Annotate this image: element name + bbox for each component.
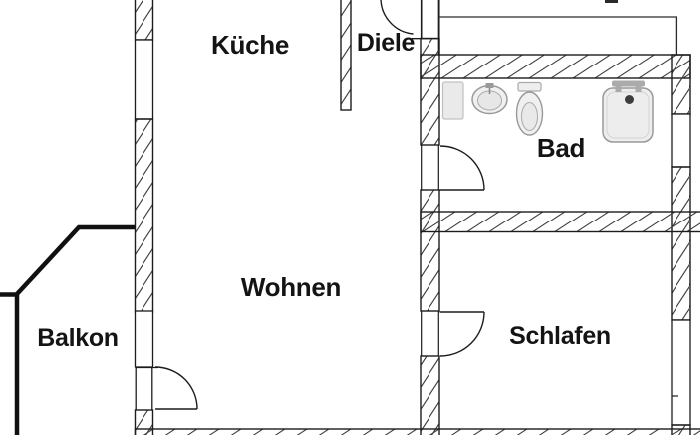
room-label-balkon: Balkon [37,324,119,352]
shower-tap-icon [612,81,645,87]
window-bad [672,114,690,167]
sink-symbol [472,83,507,114]
wall-center-lower [421,356,439,435]
wall-right-middle [672,167,690,320]
wall-bad-top [421,55,690,78]
door-arc-balkon [155,367,197,409]
wall-left-top [136,0,153,40]
wall-stub-top [605,0,618,3]
wall-kueche-diele [341,0,351,110]
room-label-diele: Diele [357,29,416,57]
toilet-symbol [517,83,543,136]
door-arc-bad [440,146,484,190]
shower-tap-foot-left [616,86,622,92]
window-schlafen [672,320,690,425]
sink-tap-icon [486,83,494,88]
wall-left-middle [136,119,153,312]
room-label-schlafen: Schlafen [509,322,611,350]
shower-symbol [603,81,653,143]
floorplan-svg: Küche Diele Bad Wohnen Balkon Schlafen [0,0,700,435]
cabinet-symbol [443,82,464,119]
wall-bad-schlafen [421,212,700,232]
wall-bottom [136,429,700,435]
wall-right-upper [672,55,690,114]
toilet-cistern [518,83,541,92]
room-label-wohnen: Wohnen [241,272,341,302]
shower-drain-icon [625,95,634,104]
window-kueche [136,40,153,119]
room-label-bad: Bad [537,133,585,163]
floorplan: Küche Diele Bad Wohnen Balkon Schlafen [0,0,700,435]
room-label-kueche: Küche [211,30,289,60]
wall-center-middle [421,190,439,311]
window-wohnen [136,311,153,367]
shower-tap-foot-right [636,86,642,92]
door-arc-schlafen [440,312,484,356]
